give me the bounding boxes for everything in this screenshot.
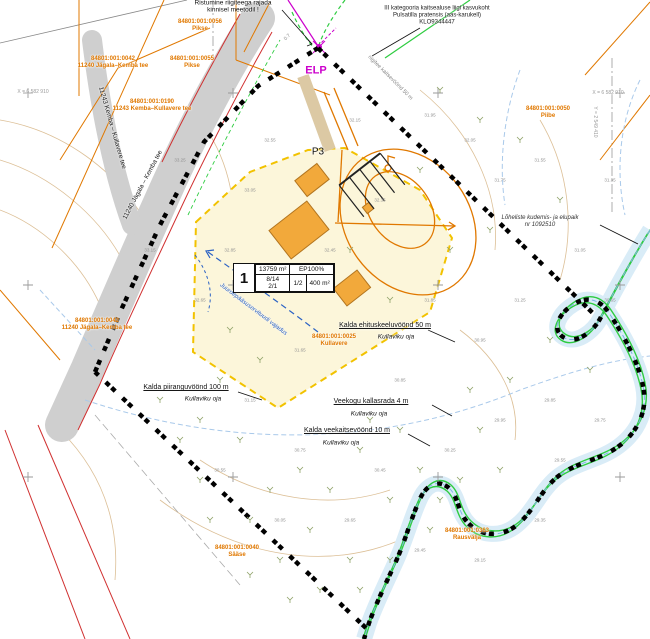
parcel-area: 13759 m² <box>256 265 290 275</box>
parcel-info-table: 1 13759 m² EP100% 8/14 2/1 1/2 400 m² <box>233 263 335 293</box>
parcel-ep: EP100% <box>290 265 333 275</box>
access-path <box>303 76 330 150</box>
site-plan-drawing <box>0 0 650 639</box>
parcel-floors: 1/2 <box>290 275 306 292</box>
detail-plan-map: Ristumine riigiteega rajada kinnisel mee… <box>0 0 650 639</box>
parcel-ratio: 8/14 2/1 <box>256 275 290 292</box>
parcel-number: 1 <box>234 264 255 292</box>
parcel-footprint: 400 m² <box>306 275 333 292</box>
